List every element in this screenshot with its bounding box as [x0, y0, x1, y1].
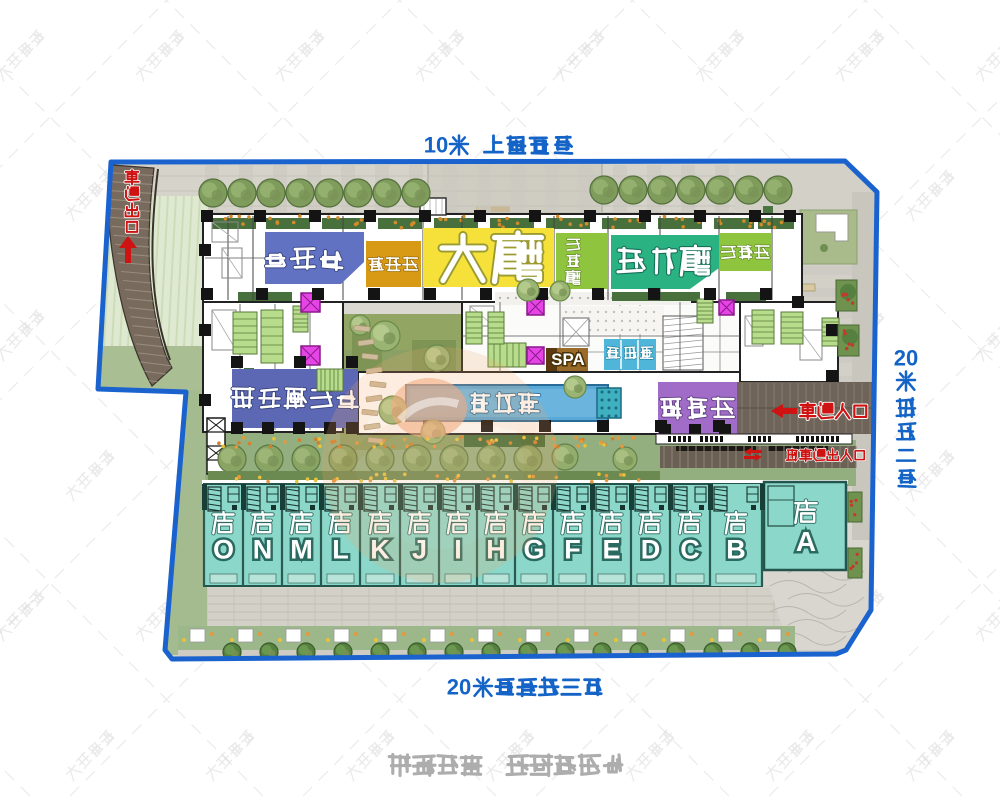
svg-text:F: F	[564, 535, 581, 565]
svg-text:O: O	[213, 535, 234, 565]
svg-text:SPA: SPA	[551, 350, 585, 369]
svg-text:A: A	[796, 526, 816, 557]
svg-text:N: N	[253, 535, 273, 565]
svg-text:E: E	[602, 535, 620, 565]
svg-text:M: M	[290, 535, 313, 565]
svg-text:B: B	[726, 535, 746, 565]
svg-text:C: C	[680, 535, 700, 565]
svg-text:20: 20	[447, 675, 471, 700]
svg-text:10: 10	[424, 133, 448, 158]
svg-text:D: D	[641, 535, 661, 565]
svg-text:L: L	[332, 535, 349, 565]
svg-text:20: 20	[894, 346, 918, 371]
